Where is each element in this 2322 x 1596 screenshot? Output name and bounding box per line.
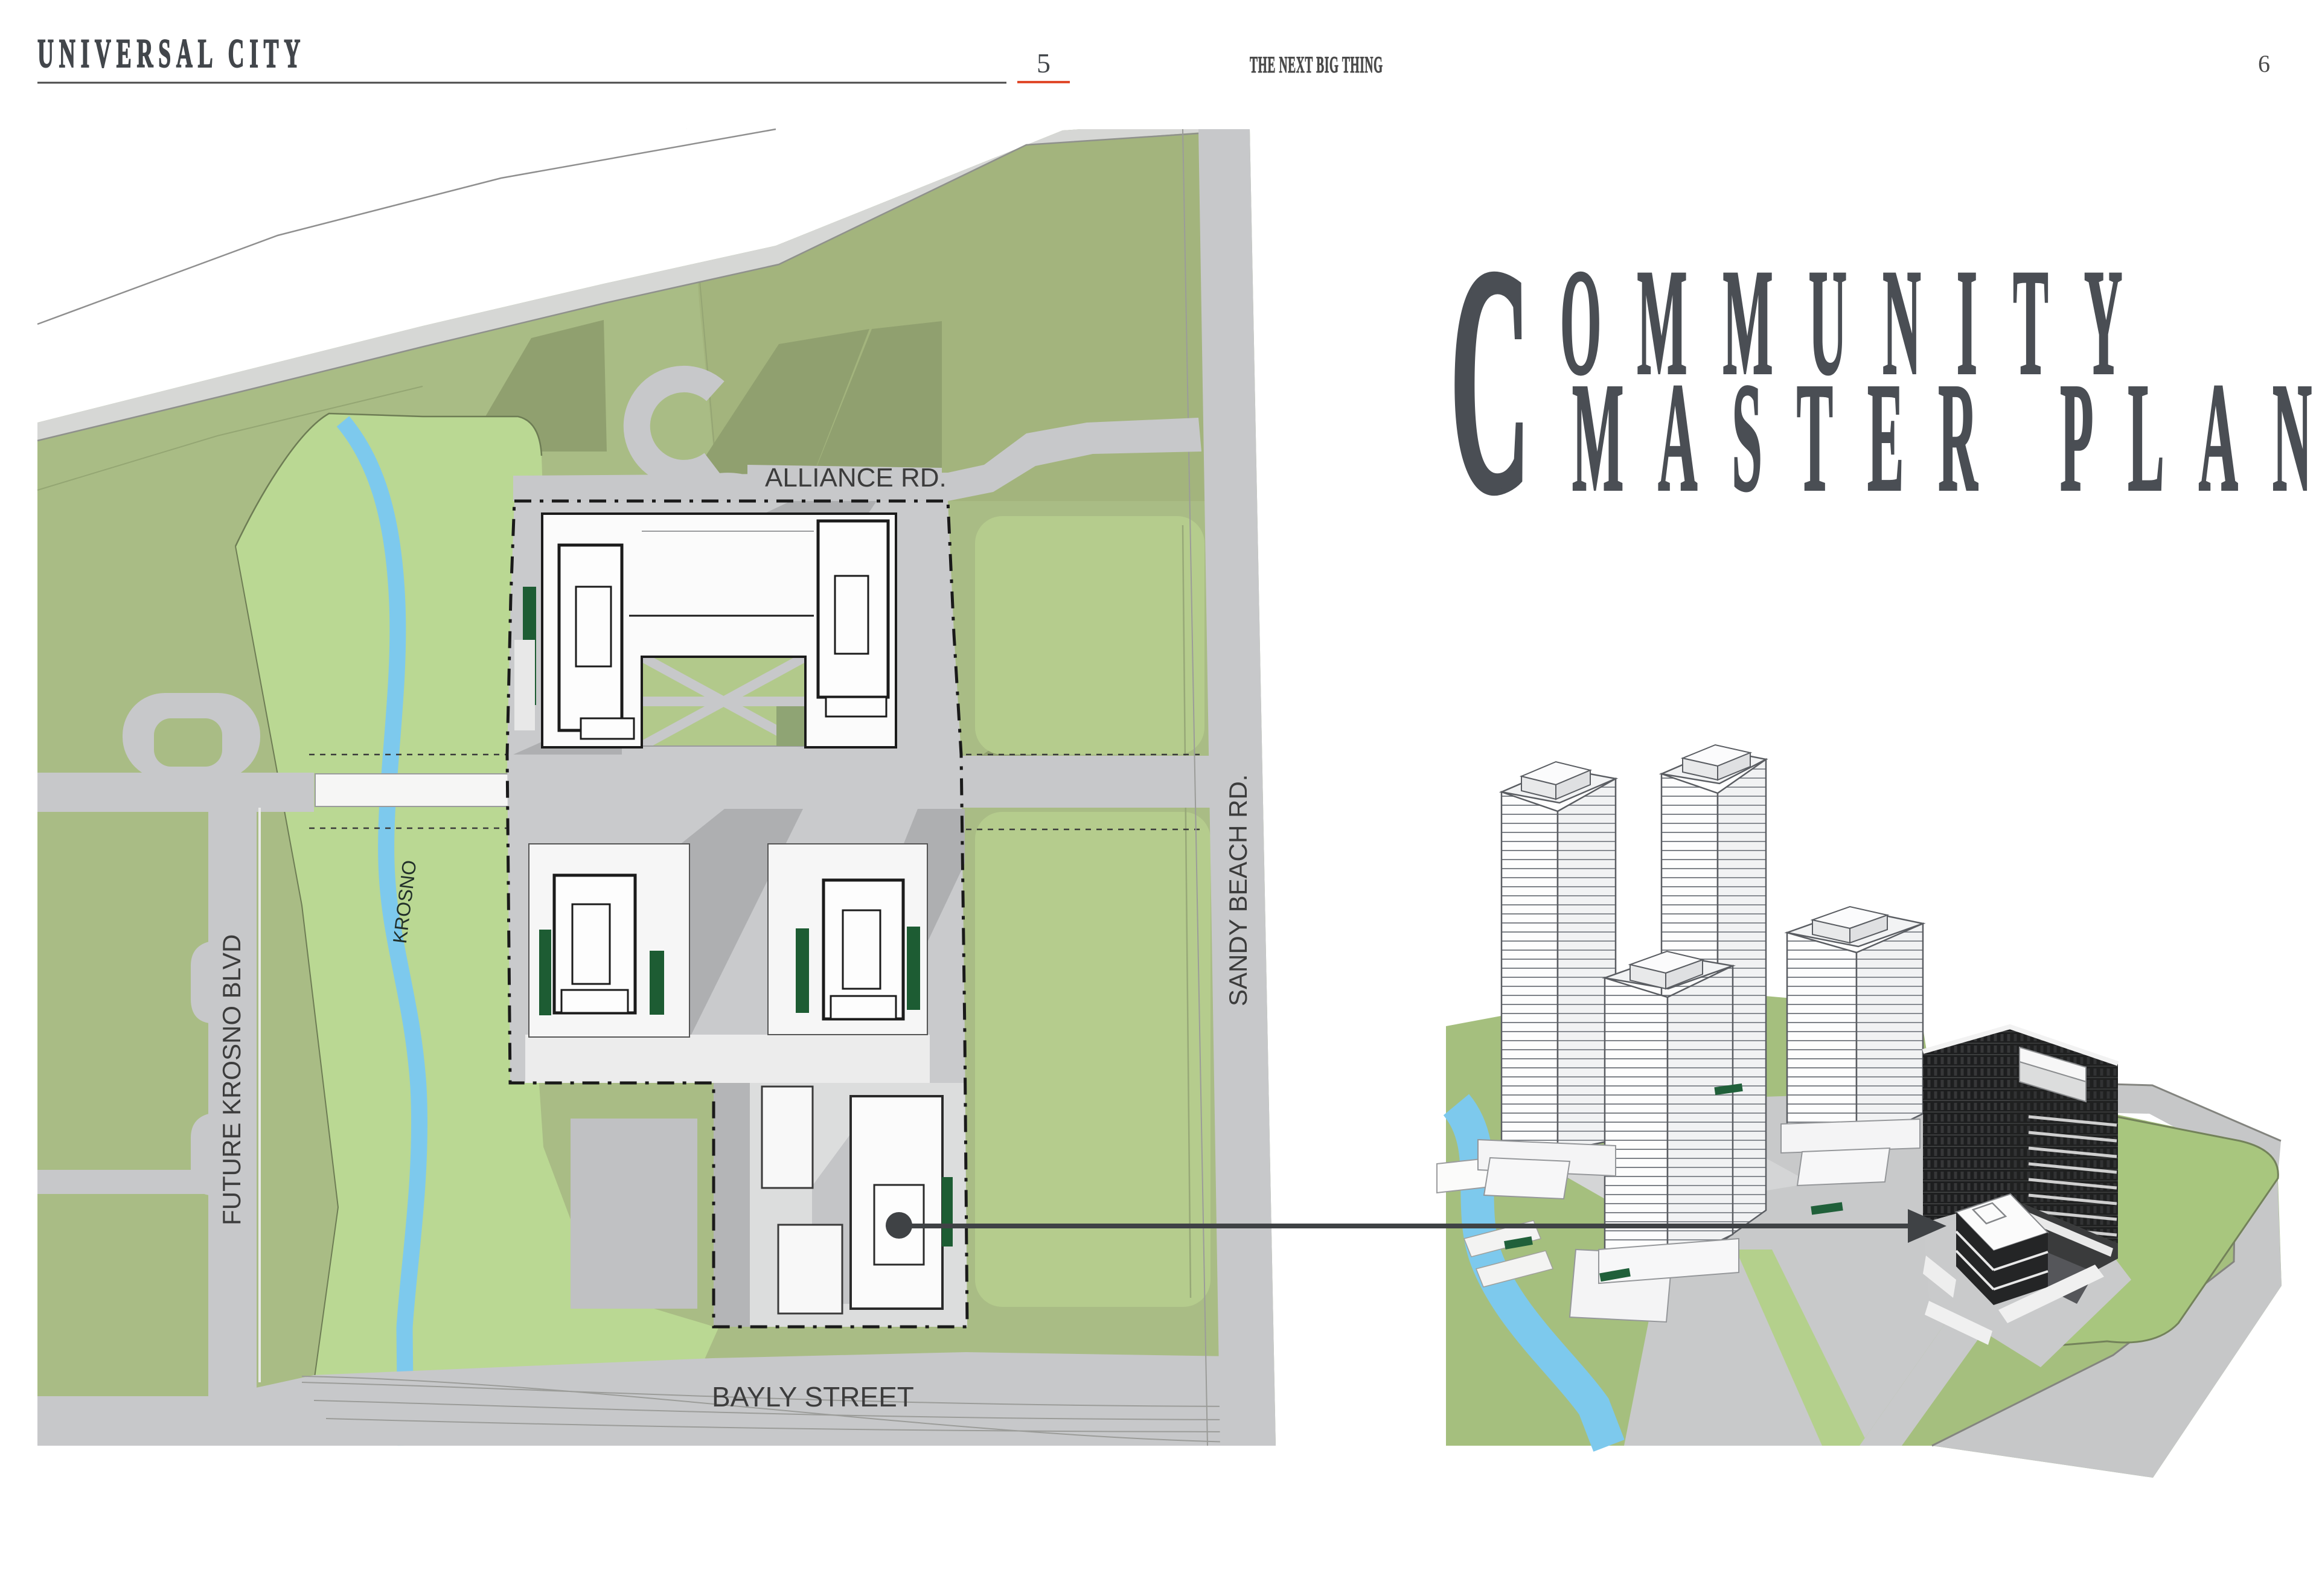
svg-text:THE NEXT BIG THING: THE NEXT BIG THING bbox=[1250, 52, 1383, 78]
svg-text:MASTER PLAN: MASTER PLAN bbox=[1572, 351, 2322, 523]
svg-text:BAYLY STREET: BAYLY STREET bbox=[712, 1381, 914, 1412]
svg-text:UNIVERSAL CITY: UNIVERSAL CITY bbox=[37, 30, 305, 76]
svg-text:ALLIANCE RD.: ALLIANCE RD. bbox=[765, 463, 947, 493]
svg-text:6: 6 bbox=[2258, 50, 2270, 77]
svg-text:FUTURE KROSNO BLVD: FUTURE KROSNO BLVD bbox=[217, 934, 246, 1225]
svg-text:5: 5 bbox=[1037, 48, 1051, 78]
svg-text:SANDY BEACH RD.: SANDY BEACH RD. bbox=[1224, 774, 1252, 1006]
svg-text:C: C bbox=[1450, 200, 1530, 560]
